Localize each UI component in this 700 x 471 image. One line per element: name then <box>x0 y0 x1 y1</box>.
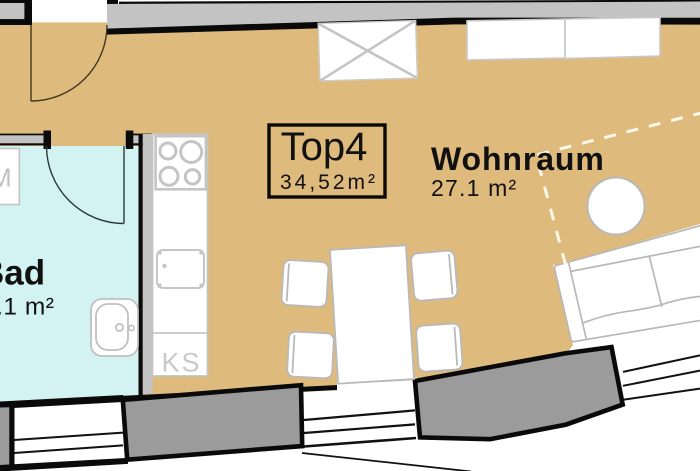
svg-text:M: M <box>0 163 12 193</box>
svg-text:4.1 m²: 4.1 m² <box>0 294 54 321</box>
svg-text:Top4: Top4 <box>281 125 368 169</box>
svg-text:Wohnraum: Wohnraum <box>431 141 605 177</box>
svg-text:Bad: Bad <box>0 254 45 293</box>
svg-text:KS: KS <box>161 348 201 378</box>
svg-text:27.1 m²: 27.1 m² <box>431 175 517 201</box>
svg-text:34,52m²: 34,52m² <box>280 171 378 194</box>
